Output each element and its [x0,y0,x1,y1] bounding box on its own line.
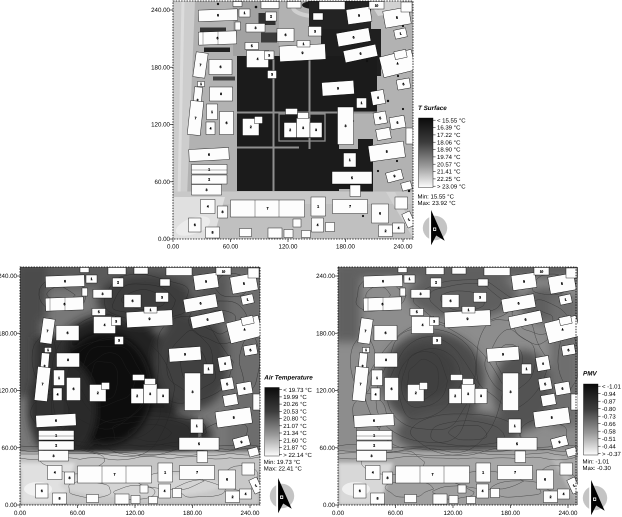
svg-text:-0.66: -0.66 [602,421,616,428]
svg-text:180.00: 180.00 [151,65,170,72]
svg-text:Max: 22.41 °C: Max: 22.41 °C [264,466,303,473]
svg-text:240.00: 240.00 [241,510,260,517]
svg-text:240.00: 240.00 [316,273,335,280]
svg-text:60.00: 60.00 [70,510,86,517]
svg-text:-0.87: -0.87 [602,398,616,405]
svg-text:21.07 °C: 21.07 °C [283,423,307,430]
svg-text:-0.73: -0.73 [602,413,616,420]
svg-text:60.00: 60.00 [388,510,404,517]
svg-text:240.00: 240.00 [151,7,170,14]
svg-text:17.22 °C: 17.22 °C [437,132,461,139]
svg-text:60.00: 60.00 [320,445,336,452]
svg-text:21.60 °C: 21.60 °C [283,437,307,444]
svg-text:0.00: 0.00 [5,502,18,509]
svg-text:20.57 °C: 20.57 °C [437,161,461,168]
svg-text:19.99 °C: 19.99 °C [283,394,307,401]
svg-text:180.00: 180.00 [183,510,202,517]
svg-text:180.00: 180.00 [336,244,355,251]
svg-text:16.39 °C: 16.39 °C [437,125,461,132]
svg-text:-0.58: -0.58 [602,428,616,435]
svg-text:Air Temperature: Air Temperature [263,375,313,382]
svg-text:PMV: PMV [583,371,597,378]
svg-text:240.00: 240.00 [394,244,413,251]
svg-text:> -0.37: > -0.37 [602,451,622,458]
svg-text:180.00: 180.00 [316,330,335,337]
svg-text:120.00: 120.00 [316,388,335,395]
svg-text:Min: 15.55 °C: Min: 15.55 °C [418,194,455,201]
svg-text:Min: -1.01: Min: -1.01 [583,459,610,466]
svg-text:0.00: 0.00 [323,502,336,509]
svg-text:20.26 °C: 20.26 °C [283,401,307,408]
svg-text:Max: -0.30: Max: -0.30 [583,465,612,472]
svg-text:-0.44: -0.44 [602,443,616,450]
svg-text:120.00: 120.00 [0,388,18,395]
svg-text:> 23.09 °C: > 23.09 °C [437,183,466,190]
svg-text:T Surface: T Surface [418,105,447,112]
svg-text:240.00: 240.00 [0,273,18,280]
svg-text:0.00: 0.00 [14,510,27,517]
svg-text:20.53 °C: 20.53 °C [283,409,307,416]
svg-text:120.00: 120.00 [151,122,170,129]
svg-text:120.00: 120.00 [126,510,145,517]
svg-text:21.34 °C: 21.34 °C [283,430,307,437]
svg-text:21.41 °C: 21.41 °C [437,169,461,176]
svg-text:-0.51: -0.51 [602,436,616,443]
svg-text:-0.94: -0.94 [602,391,616,398]
svg-text:Max: 23.92 °C: Max: 23.92 °C [418,200,457,207]
svg-text:18.90 °C: 18.90 °C [437,147,461,154]
svg-text:20.80 °C: 20.80 °C [283,416,307,423]
svg-text:> 22.14 °C: > 22.14 °C [283,452,312,459]
svg-text:22.25 °C: 22.25 °C [437,176,461,183]
svg-text:< -1.01: < -1.01 [602,383,622,390]
svg-text:< 19.73 °C: < 19.73 °C [283,387,312,394]
svg-text:60.00: 60.00 [155,179,171,186]
svg-text:< 15.55 °C: < 15.55 °C [437,117,466,124]
svg-text:180.00: 180.00 [501,510,520,517]
svg-text:180.00: 180.00 [0,330,18,337]
svg-text:60.00: 60.00 [2,445,18,452]
svg-text:0.00: 0.00 [158,236,171,243]
svg-text:0.00: 0.00 [332,510,345,517]
svg-text:-0.80: -0.80 [602,406,616,413]
svg-text:120.00: 120.00 [444,510,463,517]
svg-text:60.00: 60.00 [223,244,239,251]
svg-text:120.00: 120.00 [279,244,298,251]
svg-text:19.74 °C: 19.74 °C [437,154,461,161]
svg-text:240.00: 240.00 [559,510,578,517]
svg-text:Min: 19.73 °C: Min: 19.73 °C [264,459,301,466]
svg-text:18.06 °C: 18.06 °C [437,139,461,146]
svg-text:0.00: 0.00 [167,244,180,251]
svg-text:21.87 °C: 21.87 °C [283,445,307,452]
